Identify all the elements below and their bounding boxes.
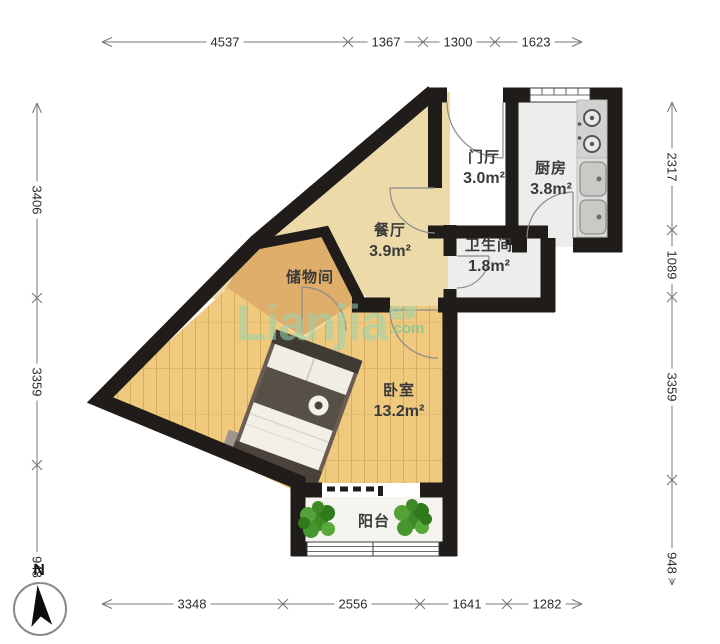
dimension-label-bottom-1: 3348 <box>174 597 211 612</box>
sliding-door <box>322 483 420 497</box>
window-balcony <box>307 542 439 556</box>
dimension-label-bottom-4: 1282 <box>529 597 566 612</box>
room-name: 阳台 <box>358 512 390 532</box>
stove-icon <box>577 100 607 158</box>
room-area: 13.2m² <box>374 401 425 423</box>
room-label-entry: 门厅 3.0m² <box>463 148 505 190</box>
north-label: N <box>33 562 45 580</box>
dimension-label-right-2: 1089 <box>665 247 680 284</box>
dimension-label-right-1: 2317 <box>665 149 680 186</box>
room-name: 门厅 <box>468 148 500 168</box>
dimension-label-top-1: 4537 <box>207 35 244 50</box>
room-label-balcony: 阳台 <box>358 512 390 532</box>
room-area: 3.8m² <box>530 179 572 201</box>
room-area: 3.9m² <box>369 241 411 263</box>
room-name: 储物间 <box>286 268 334 288</box>
dimension-label-top-2: 1367 <box>368 35 405 50</box>
room-label-kitchen: 厨房 3.8m² <box>530 159 572 201</box>
floor-plan: Lianjia 链家 .com 门厅 3.0m² 厨房 3.8m² 餐厅 3.9… <box>0 0 720 644</box>
floor-plan-canvas <box>0 0 720 644</box>
dimension-label-bottom-3: 1641 <box>449 597 486 612</box>
dimension-label-bottom-2: 2556 <box>335 597 372 612</box>
dimension-label-right-4: 948 <box>665 548 680 578</box>
north-arrow-icon <box>14 583 66 635</box>
room-area: 3.0m² <box>463 168 505 190</box>
room-label-storage: 储物间 <box>286 268 334 288</box>
dimension-label-top-3: 1300 <box>440 35 477 50</box>
room-label-bathroom: 卫生间 1.8m² <box>465 236 513 278</box>
room-area: 1.8m² <box>468 256 510 278</box>
room-name: 厨房 <box>535 159 567 179</box>
dimension-label-top-4: 1623 <box>518 35 555 50</box>
dimension-label-left-1: 3406 <box>30 182 45 219</box>
kitchen-fixtures <box>577 100 607 237</box>
room-name: 卫生间 <box>465 236 513 256</box>
dimension-label-left-2: 3359 <box>30 364 45 401</box>
dimension-label-right-3: 3359 <box>665 369 680 406</box>
room-label-bedroom: 卧室 13.2m² <box>374 381 425 423</box>
room-name: 餐厅 <box>374 221 406 241</box>
room-name: 卧室 <box>383 381 415 401</box>
room-label-dining: 餐厅 3.9m² <box>369 221 411 263</box>
